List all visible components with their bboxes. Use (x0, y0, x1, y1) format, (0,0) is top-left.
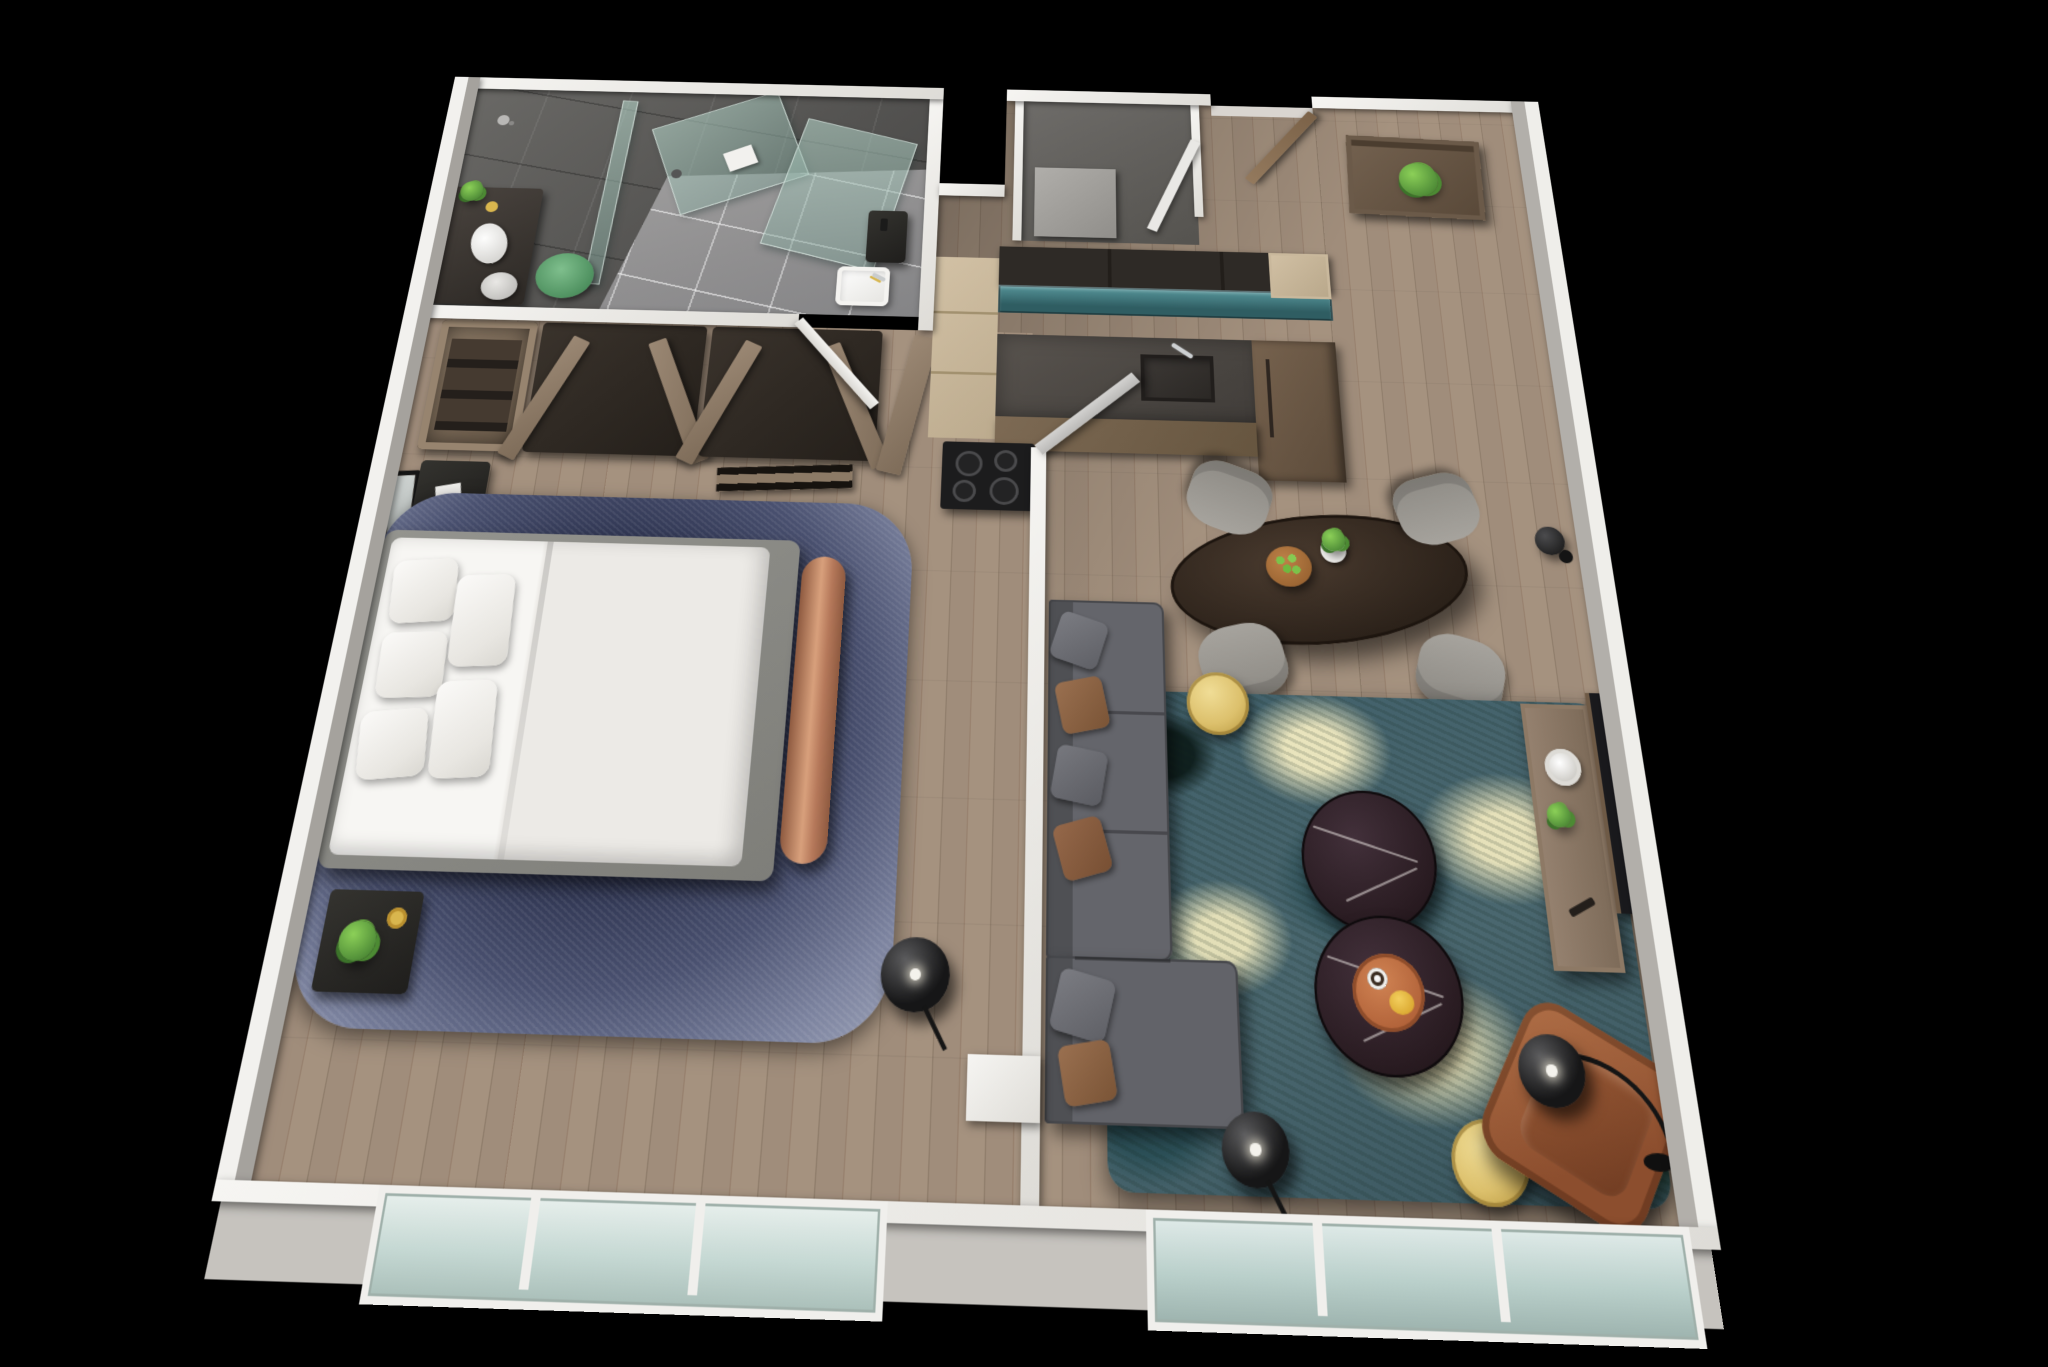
bed-pillow (388, 558, 459, 624)
bed-pillow (447, 574, 517, 667)
tan-corner-cabinet (1268, 253, 1331, 299)
cooktop (940, 441, 1035, 511)
notch-wall (939, 183, 1005, 197)
sofa-pillow-brown (1057, 1039, 1119, 1108)
bedroom-window (359, 1185, 888, 1322)
white-sink-basin (835, 266, 890, 306)
sofa-pillow-gray (1049, 743, 1108, 807)
living-window (1146, 1209, 1708, 1349)
alcove-unit (1034, 167, 1117, 238)
bath-bottle (880, 218, 888, 231)
exterior-notch (940, 88, 1007, 185)
wardrobe-drawer-slots (716, 464, 852, 491)
tall-tan-cabinet-column (928, 257, 999, 439)
bed-pillow (355, 707, 429, 780)
bed-pillow (427, 679, 498, 779)
floor-plan-scene (0, 0, 2048, 1367)
kitchen-sink (1140, 354, 1215, 402)
apartment-plan (211, 77, 1721, 1250)
wall-pier (966, 1054, 1041, 1123)
